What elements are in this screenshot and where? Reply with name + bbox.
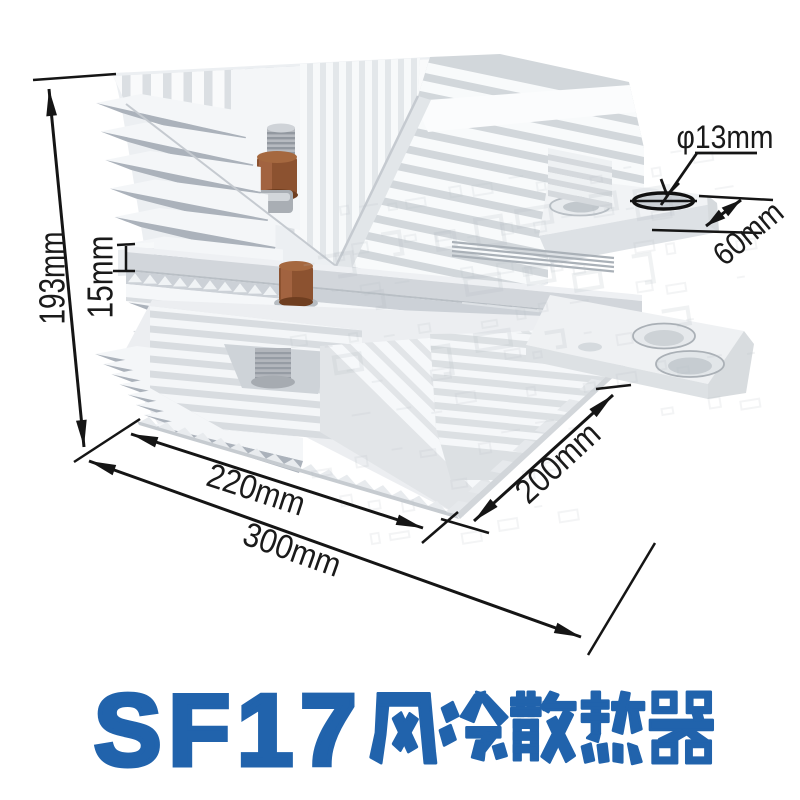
svg-text:SF17: SF17 [94,675,363,787]
svg-text:193mm: 193mm [32,232,73,325]
svg-text:φ13mm: φ13mm [677,119,774,155]
svg-text:15mm: 15mm [80,236,121,319]
